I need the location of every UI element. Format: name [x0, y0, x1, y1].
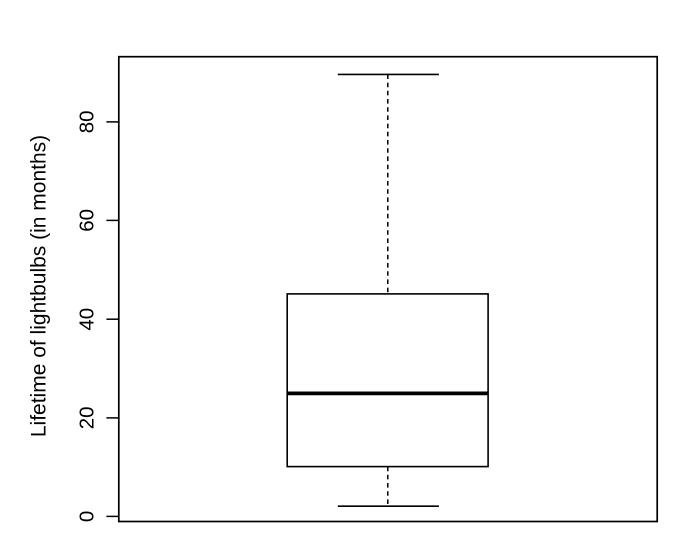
svg-text:40: 40 — [76, 308, 99, 331]
svg-text:0: 0 — [76, 511, 99, 522]
svg-text:60: 60 — [76, 209, 99, 232]
svg-text:Lifetime of lightbulbs (in mon: Lifetime of lightbulbs (in months) — [28, 135, 51, 437]
svg-text:80: 80 — [76, 110, 99, 133]
svg-text:20: 20 — [76, 406, 99, 429]
